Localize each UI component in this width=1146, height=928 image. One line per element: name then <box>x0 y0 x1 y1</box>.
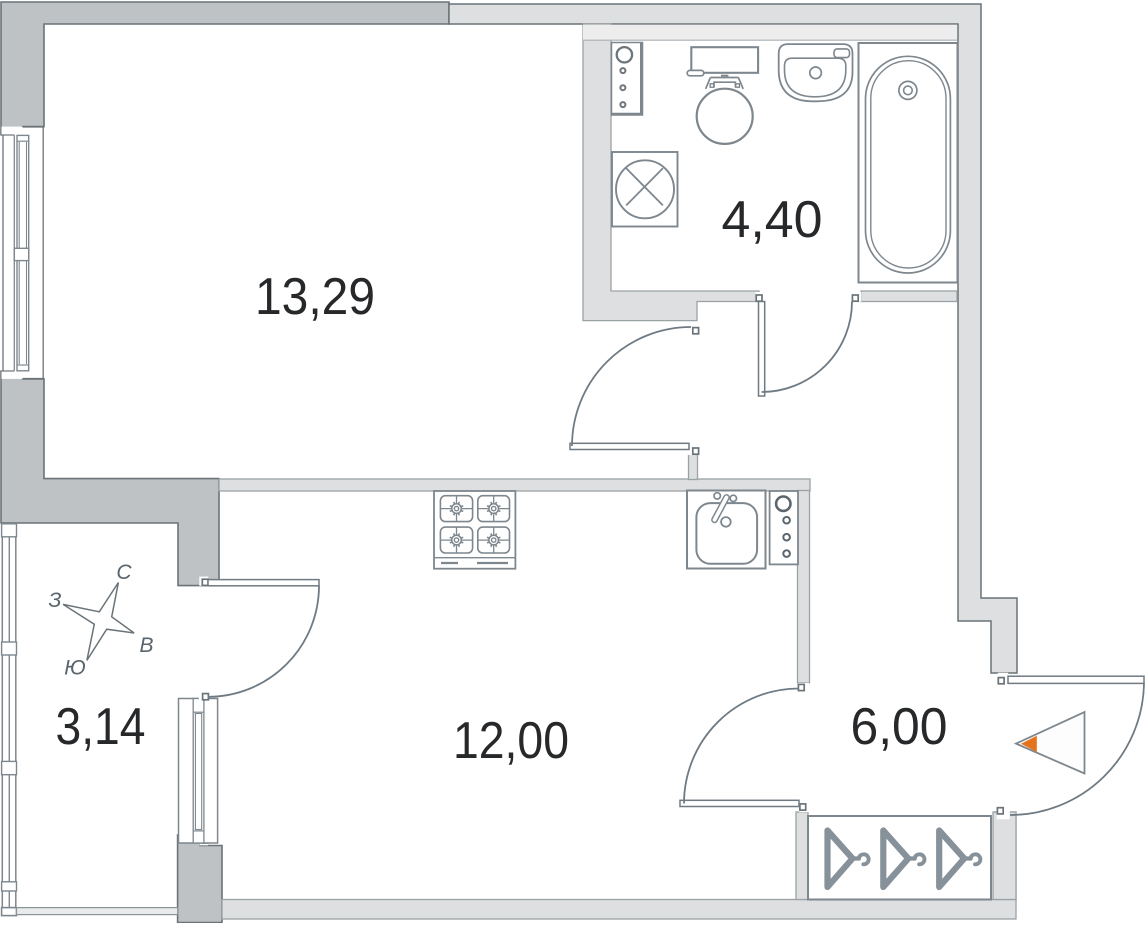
svg-text:4,40: 4,40 <box>722 191 823 249</box>
svg-text:12,00: 12,00 <box>453 712 569 770</box>
svg-text:13,29: 13,29 <box>255 268 375 326</box>
svg-text:3,14: 3,14 <box>56 698 146 756</box>
svg-text:В: В <box>139 634 153 657</box>
svg-text:С: С <box>116 561 132 584</box>
svg-text:З: З <box>49 589 62 612</box>
svg-text:6,00: 6,00 <box>851 698 948 756</box>
svg-text:Ю: Ю <box>64 657 85 680</box>
